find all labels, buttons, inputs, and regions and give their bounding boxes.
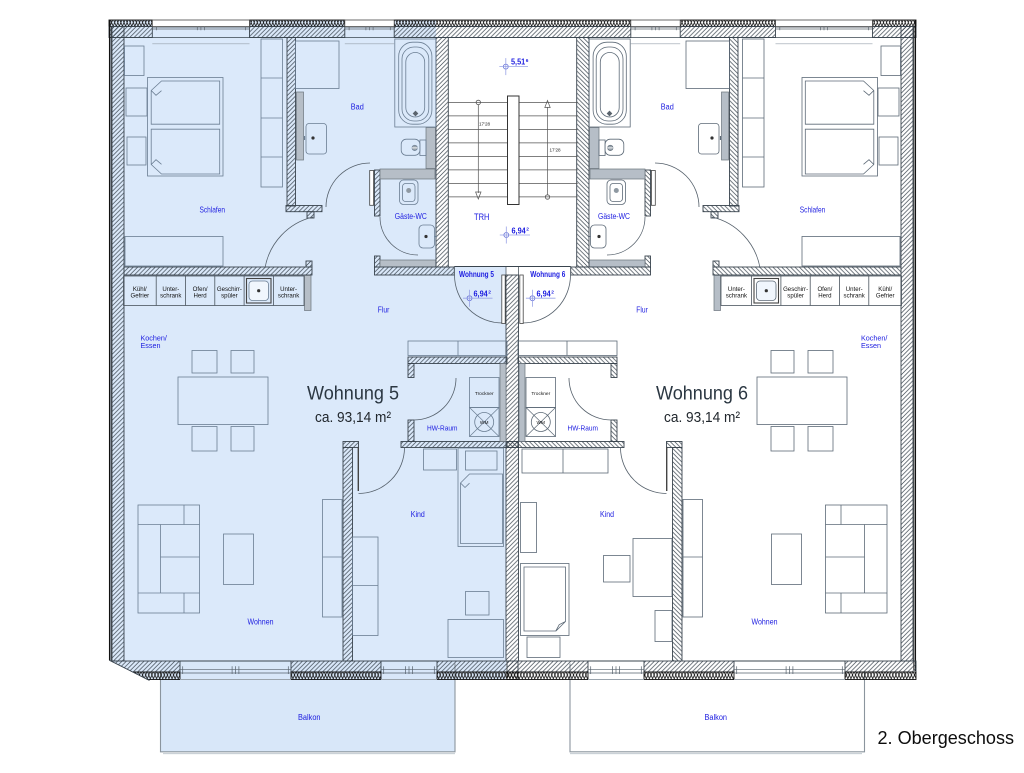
svg-text:schrank: schrank: [160, 293, 182, 300]
svg-text:17'28: 17'28: [550, 148, 562, 153]
svg-text:Essen: Essen: [141, 341, 161, 350]
svg-text:Flur: Flur: [378, 306, 390, 315]
svg-text:17'28: 17'28: [479, 121, 491, 126]
svg-text:Essen: Essen: [861, 341, 881, 350]
svg-text:WM: WM: [480, 420, 489, 426]
svg-text:2: 2: [551, 290, 554, 296]
svg-text:HW-Raum: HW-Raum: [568, 424, 599, 433]
svg-text:Gefrier: Gefrier: [876, 293, 895, 300]
svg-text:6: 6: [526, 58, 529, 64]
svg-text:Trockner: Trockner: [475, 391, 494, 397]
svg-text:ca. 93,14 m²: ca. 93,14 m²: [315, 409, 391, 426]
svg-text:Herd: Herd: [193, 293, 206, 300]
svg-text:Wohnen: Wohnen: [248, 617, 274, 626]
svg-text:5,51: 5,51: [511, 58, 526, 67]
svg-text:schrank: schrank: [278, 293, 300, 300]
svg-text:Gefrier: Gefrier: [130, 293, 149, 300]
svg-text:2: 2: [488, 290, 491, 296]
svg-text:Balkon: Balkon: [298, 713, 321, 722]
svg-text:Gäste-WC: Gäste-WC: [395, 212, 427, 221]
svg-text:WM: WM: [537, 420, 546, 426]
svg-text:Bad: Bad: [661, 103, 674, 112]
svg-text:Wohnen: Wohnen: [752, 617, 778, 626]
svg-text:6,94: 6,94: [537, 290, 552, 299]
svg-text:schrank: schrank: [844, 293, 866, 300]
svg-text:Gäste-WC: Gäste-WC: [598, 212, 630, 221]
svg-text:Wohnung 6: Wohnung 6: [530, 270, 565, 279]
svg-text:Schlafen: Schlafen: [200, 205, 226, 214]
svg-text:ca. 93,14 m²: ca. 93,14 m²: [664, 409, 740, 426]
svg-text:Herd: Herd: [818, 293, 831, 300]
svg-text:2: 2: [526, 227, 529, 233]
svg-text:spüler: spüler: [787, 293, 804, 300]
svg-text:2. Obergeschoss: 2. Obergeschoss: [878, 728, 1015, 748]
svg-text:Schlafen: Schlafen: [800, 205, 826, 214]
svg-text:Kind: Kind: [411, 510, 425, 519]
svg-text:HW-Raum: HW-Raum: [427, 424, 458, 433]
svg-text:Bad: Bad: [351, 103, 364, 112]
svg-text:spüler: spüler: [221, 293, 238, 300]
svg-text:Kind: Kind: [600, 510, 614, 519]
svg-text:Flur: Flur: [636, 306, 648, 315]
svg-text:Balkon: Balkon: [705, 713, 728, 722]
svg-text:Trockner: Trockner: [531, 391, 550, 397]
svg-text:TRH: TRH: [474, 212, 490, 222]
svg-text:Wohnung 5: Wohnung 5: [459, 270, 494, 279]
svg-text:Wohnung 6: Wohnung 6: [656, 383, 748, 405]
svg-text:6,94: 6,94: [474, 290, 489, 299]
svg-text:schrank: schrank: [726, 293, 748, 300]
svg-text:6,94: 6,94: [512, 226, 527, 235]
svg-text:Wohnung 5: Wohnung 5: [307, 383, 399, 405]
